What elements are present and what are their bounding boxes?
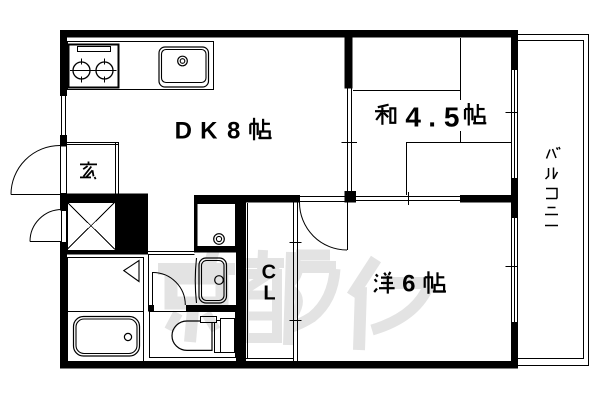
svg-text:D: D (175, 118, 192, 145)
svg-text:K: K (200, 118, 218, 145)
svg-text:4: 4 (405, 101, 421, 132)
svg-text:.: . (428, 101, 436, 132)
svg-text:8: 8 (227, 118, 240, 145)
svg-text:5: 5 (444, 101, 460, 132)
